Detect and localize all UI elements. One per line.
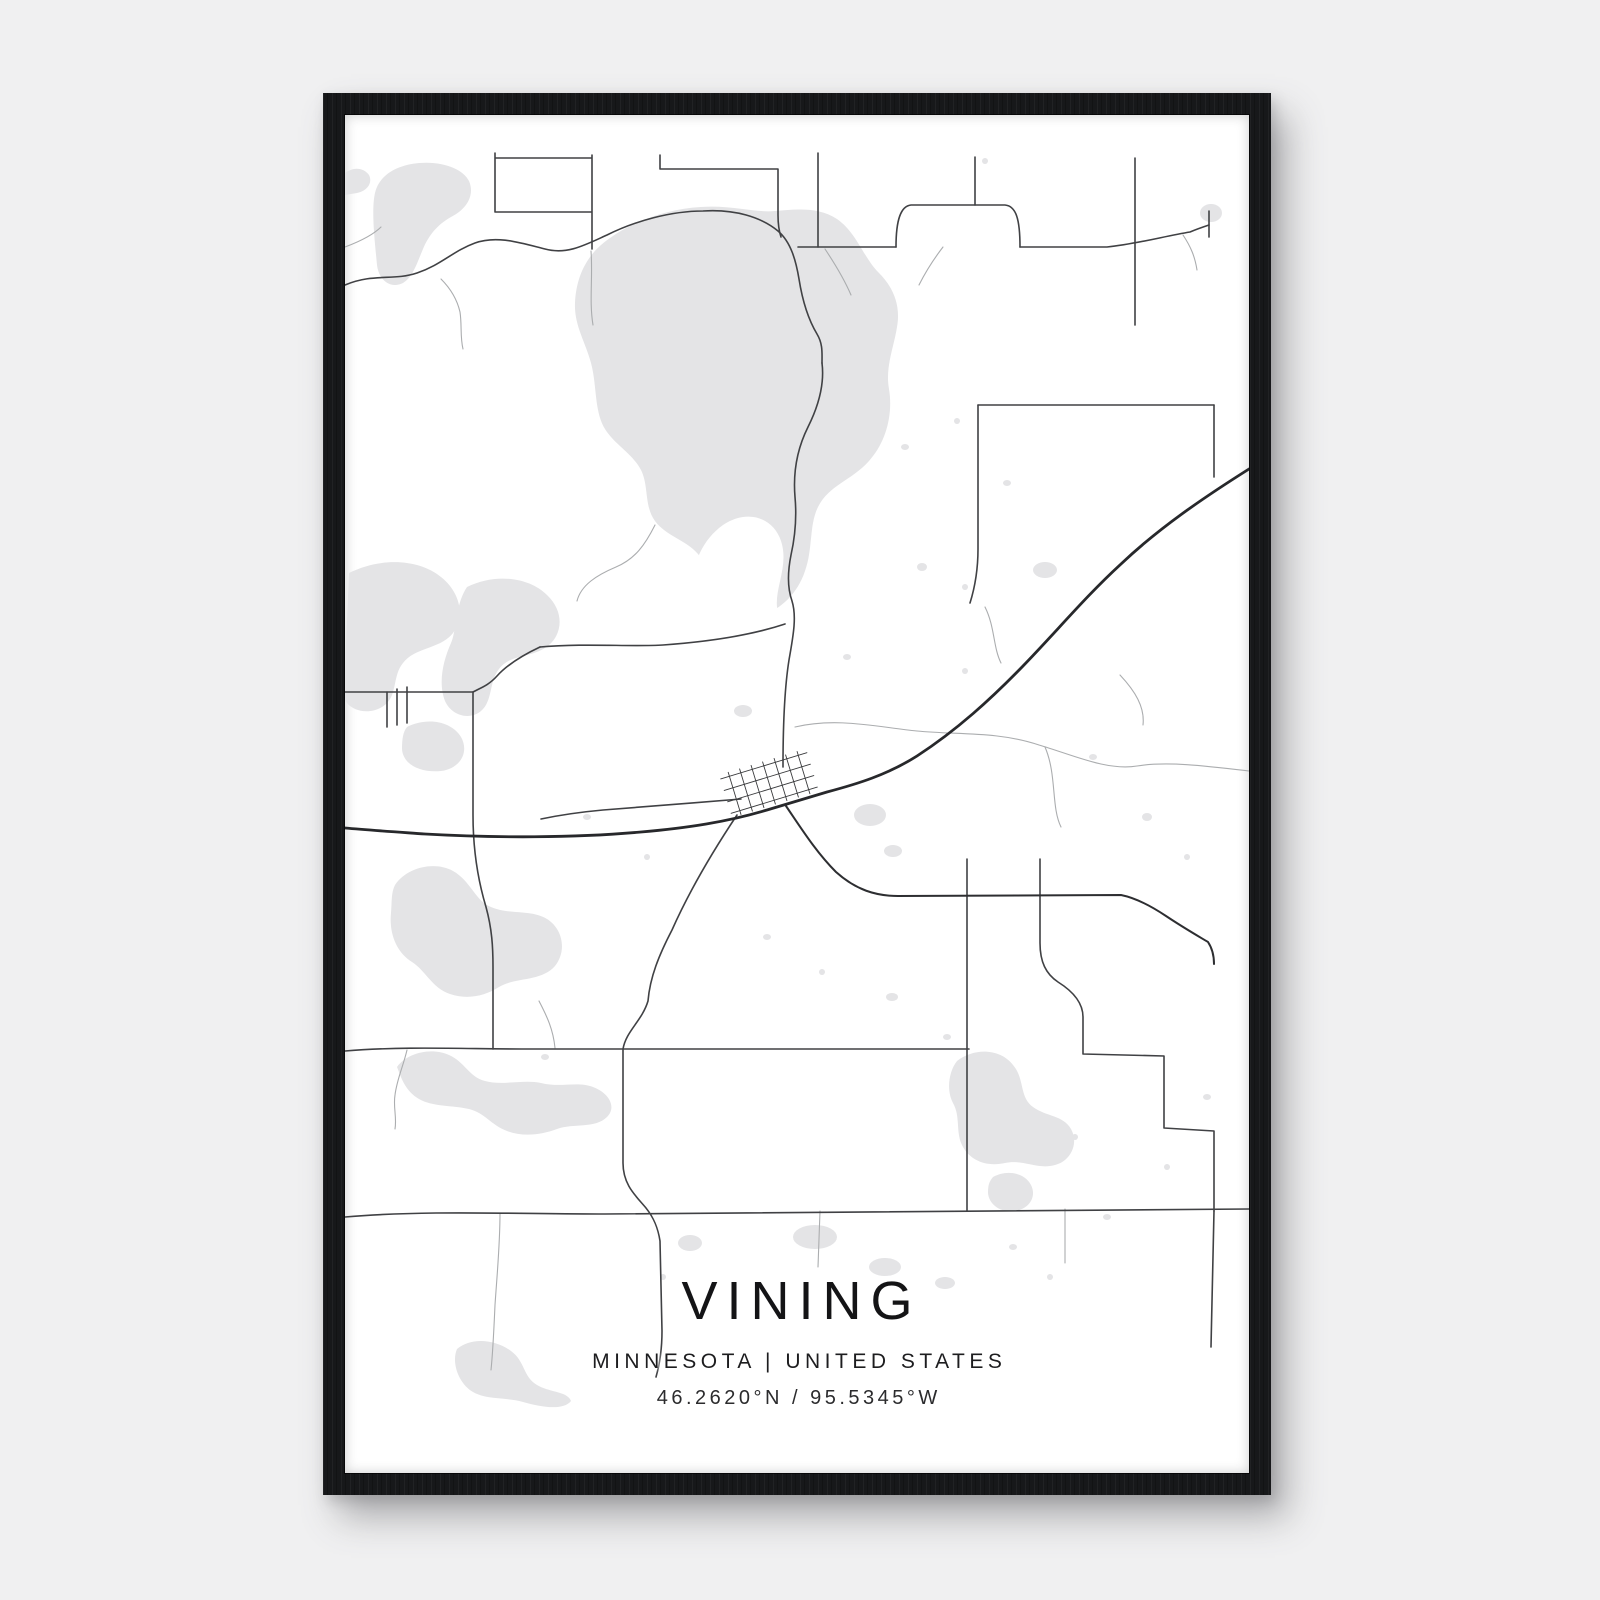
road — [896, 205, 1020, 247]
minor-road — [795, 723, 1249, 771]
road — [345, 1209, 1249, 1217]
pond — [886, 993, 898, 1001]
pond — [1089, 754, 1097, 760]
pond — [749, 274, 757, 280]
pond — [1072, 1134, 1078, 1140]
pond — [700, 344, 706, 350]
minor-road — [985, 607, 1001, 663]
pond — [843, 654, 851, 660]
lake-shape — [402, 722, 464, 772]
minor-road — [919, 247, 943, 285]
pond — [1033, 562, 1057, 578]
pond — [901, 444, 909, 450]
pond — [819, 969, 825, 975]
minor-road — [1120, 675, 1143, 725]
pond — [1200, 204, 1222, 222]
lake-shape — [988, 1173, 1033, 1211]
pond — [1004, 1074, 1010, 1080]
pond — [854, 804, 886, 826]
pond — [1103, 1214, 1111, 1220]
product-photo-background: VINING MINNESOTA | UNITED STATES 46.2620… — [0, 0, 1600, 1600]
town-streets — [728, 752, 810, 815]
road — [1020, 225, 1209, 247]
pond — [982, 158, 988, 164]
pond — [583, 814, 591, 820]
pond — [678, 1235, 702, 1251]
road — [541, 799, 741, 819]
poster-caption: VINING MINNESOTA | UNITED STATES 46.2620… — [345, 1273, 1249, 1410]
pond — [1203, 1094, 1211, 1100]
pond — [793, 1225, 837, 1249]
lake-shape — [373, 163, 471, 285]
road — [540, 624, 785, 647]
minor-road — [539, 1001, 555, 1048]
pond — [884, 845, 902, 857]
minor-road — [441, 279, 463, 349]
town-street-grid — [721, 752, 818, 815]
pond — [763, 934, 771, 940]
pond — [1142, 813, 1152, 821]
pond — [1164, 1164, 1170, 1170]
poster-frame: VINING MINNESOTA | UNITED STATES 46.2620… — [323, 93, 1271, 1495]
minor-road — [1183, 235, 1197, 270]
pond — [1003, 480, 1011, 486]
lake-shape — [391, 866, 562, 997]
pond — [962, 668, 968, 674]
pond — [962, 584, 968, 590]
lake-shape — [397, 1051, 611, 1134]
city-name: VINING — [345, 1273, 1249, 1330]
minor-road — [577, 525, 655, 601]
road — [495, 153, 592, 249]
coordinates-label: 46.2620°N / 95.5345°W — [345, 1387, 1249, 1410]
city-map — [345, 115, 1249, 1473]
region-label: MINNESOTA | UNITED STATES — [345, 1350, 1249, 1374]
lakes — [345, 158, 1222, 1407]
road — [970, 405, 978, 603]
pond — [954, 418, 960, 424]
poster-paper: VINING MINNESOTA | UNITED STATES 46.2620… — [345, 115, 1249, 1473]
pond — [541, 1054, 549, 1060]
pond — [917, 563, 927, 571]
minor-road — [1045, 747, 1061, 827]
lake-shape — [345, 169, 370, 195]
pond — [734, 705, 752, 717]
pond — [943, 1034, 951, 1040]
lake-shape — [949, 1052, 1074, 1167]
road — [345, 1048, 969, 1051]
pond — [1184, 854, 1190, 860]
pond — [1009, 1244, 1017, 1250]
pond — [644, 854, 650, 860]
highway-branch-road — [786, 806, 1214, 964]
